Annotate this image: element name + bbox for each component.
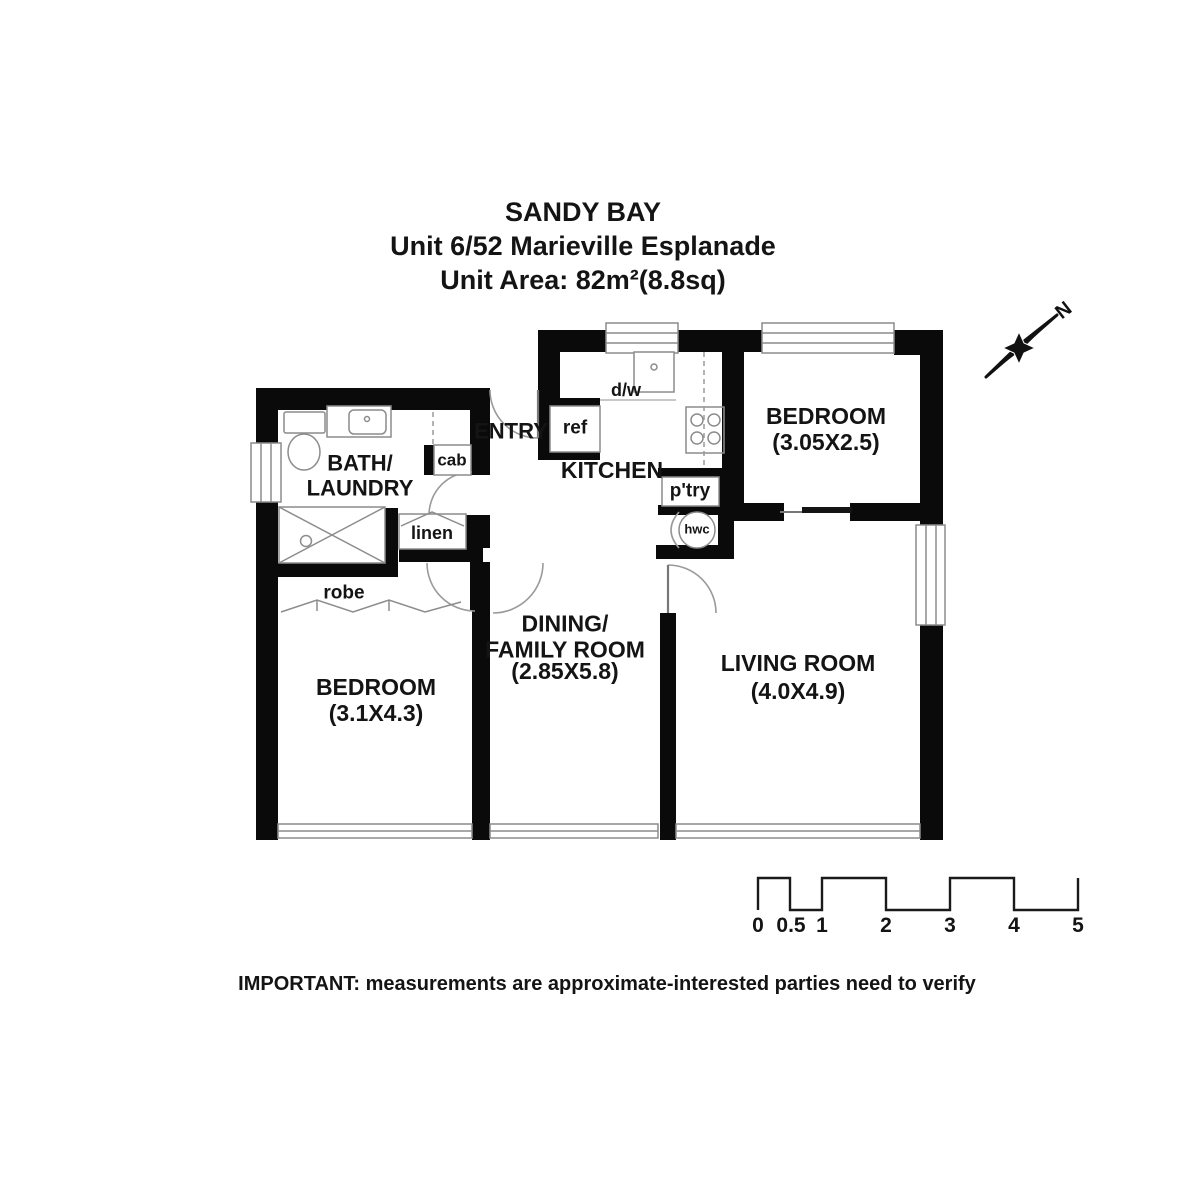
fixture-label-dishwasher: d/w [611, 380, 641, 400]
dining-door-arc [493, 563, 543, 613]
room-label-bath: BATH/ LAUNDRY [307, 451, 414, 500]
fixture-label-robe: robe [323, 582, 364, 603]
room-label-bedroom1: BEDROOM [766, 404, 886, 430]
living-door-arc [668, 565, 716, 613]
floor-plan-drawing [0, 0, 1200, 1200]
fixture-label-linen: linen [411, 523, 453, 543]
title-area: Unit Area: 82m²(8.8sq) [440, 265, 726, 295]
title-suburb: SANDY BAY [505, 197, 661, 227]
room-label-dining: DINING/ FAMILY ROOM [485, 611, 645, 663]
floor-plan-page: SANDY BAY Unit 6/52 Marieville Esplanade… [0, 0, 1200, 1200]
room-label-living: LIVING ROOM [721, 651, 876, 677]
robe-rail [281, 600, 461, 612]
scale-label-1: 1 [816, 914, 828, 938]
scale-bar [758, 878, 1078, 910]
room-label-kitchen: KITCHEN [561, 458, 663, 484]
room-label-bedroom2: BEDROOM [316, 675, 436, 701]
scale-label-0: 0 [752, 914, 764, 938]
north-arrow-icon [986, 315, 1057, 377]
bedroom2-door-arc [427, 563, 475, 611]
stove [686, 407, 724, 453]
fixture-label-pantry: p'try [670, 480, 710, 501]
sliding-door-panel [802, 507, 852, 513]
scale-label-0-5: 0.5 [776, 914, 805, 938]
fixture-label-hwc: hwc [684, 523, 709, 538]
disclaimer-text: IMPORTANT: measurements are approximate-… [238, 973, 976, 995]
scale-label-3: 3 [944, 914, 956, 938]
room-dims-bedroom1: (3.05X2.5) [772, 430, 879, 456]
fixture-label-fridge: ref [563, 417, 587, 438]
title-address: Unit 6/52 Marieville Esplanade [390, 231, 776, 261]
room-dims-dining: (2.85X5.8) [511, 659, 618, 685]
room-dims-living: (4.0X4.9) [751, 679, 846, 705]
bath-door-arc [429, 472, 472, 515]
scale-label-2: 2 [880, 914, 892, 938]
room-dims-bedroom2: (3.1X4.3) [329, 701, 424, 727]
scale-label-5: 5 [1072, 914, 1084, 938]
room-label-entry: ENTRY [474, 420, 548, 445]
shower [279, 507, 385, 563]
toilet-cistern [284, 412, 325, 433]
scale-label-4: 4 [1008, 914, 1020, 938]
fixture-label-cab: cab [437, 450, 466, 469]
hwc-door-curve [671, 512, 679, 548]
